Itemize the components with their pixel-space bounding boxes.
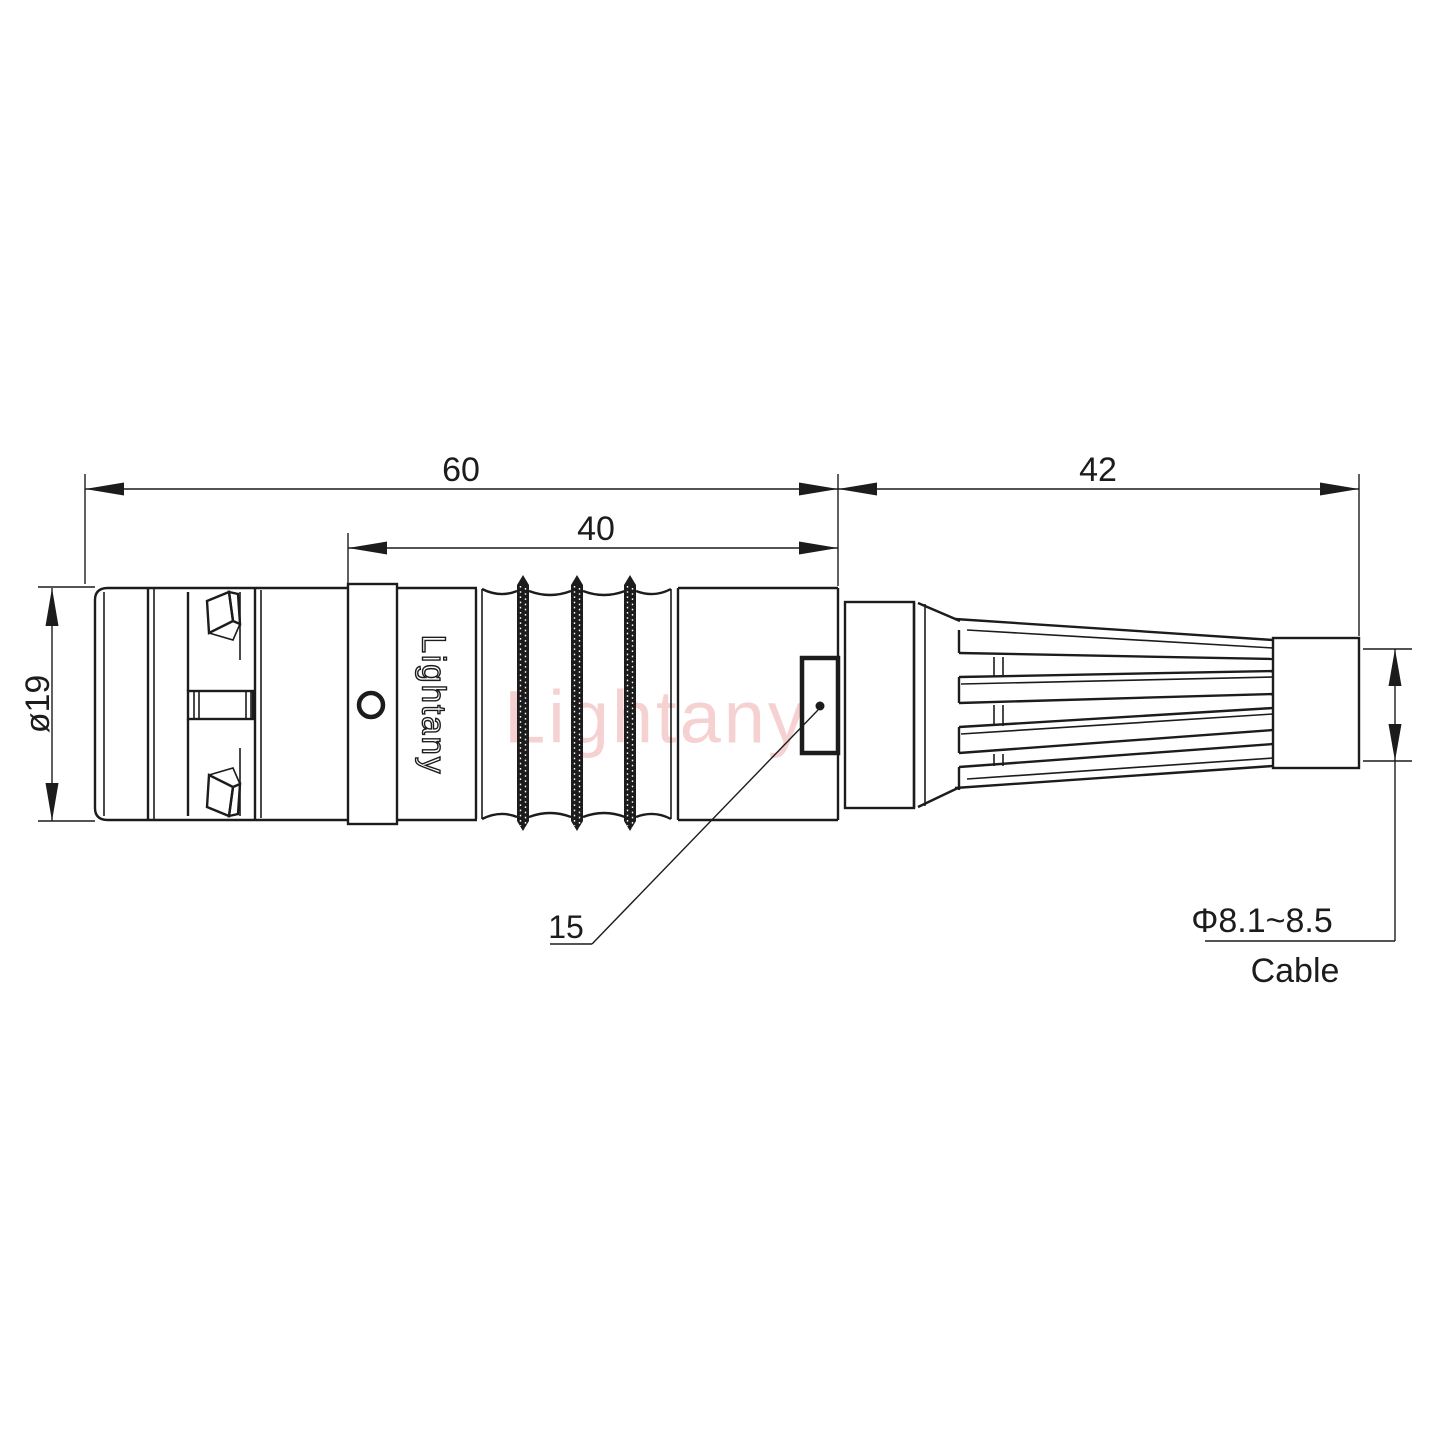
latch-tab-bottom [207, 768, 240, 816]
technical-drawing-page: Lightany [0, 0, 1440, 1440]
dim-60-label: 60 [442, 451, 480, 489]
connector-dimension-drawing: Lightany [0, 0, 1440, 1440]
body-engraving: Lightany [416, 635, 453, 776]
mid-body: Lightany [397, 588, 482, 820]
callout-15-label: 15 [548, 909, 584, 945]
dimension-shell-diameter: ø19 [19, 587, 95, 821]
cable-tip [1273, 638, 1359, 768]
collar-ring [348, 584, 397, 824]
dim-dia19-label: ø19 [19, 675, 57, 734]
latch-tab-top [207, 592, 240, 640]
key-slot [188, 691, 253, 719]
cable-diameter-label: Φ8.1~8.5 [1191, 902, 1333, 940]
strain-relief-boot [918, 603, 1359, 807]
crimp-shell [845, 602, 925, 808]
keyway-point [816, 702, 825, 711]
dimension-overall-length: 60 [85, 451, 838, 586]
brand-watermark: Lightany [504, 676, 808, 759]
knurl-band-1 [517, 575, 529, 831]
dim-42-label: 42 [1079, 451, 1117, 489]
cable-word-label: Cable [1251, 952, 1340, 990]
dim-40-label: 40 [577, 510, 615, 548]
knurl-band-2 [571, 575, 583, 831]
connector-front-shell [95, 588, 348, 820]
dimension-boot-length: 42 [838, 451, 1359, 636]
boot-rib-upper [959, 671, 1273, 703]
dimension-mid-length: 40 [348, 510, 838, 585]
knurl-band-3 [624, 575, 636, 831]
vent-hole [359, 693, 383, 717]
